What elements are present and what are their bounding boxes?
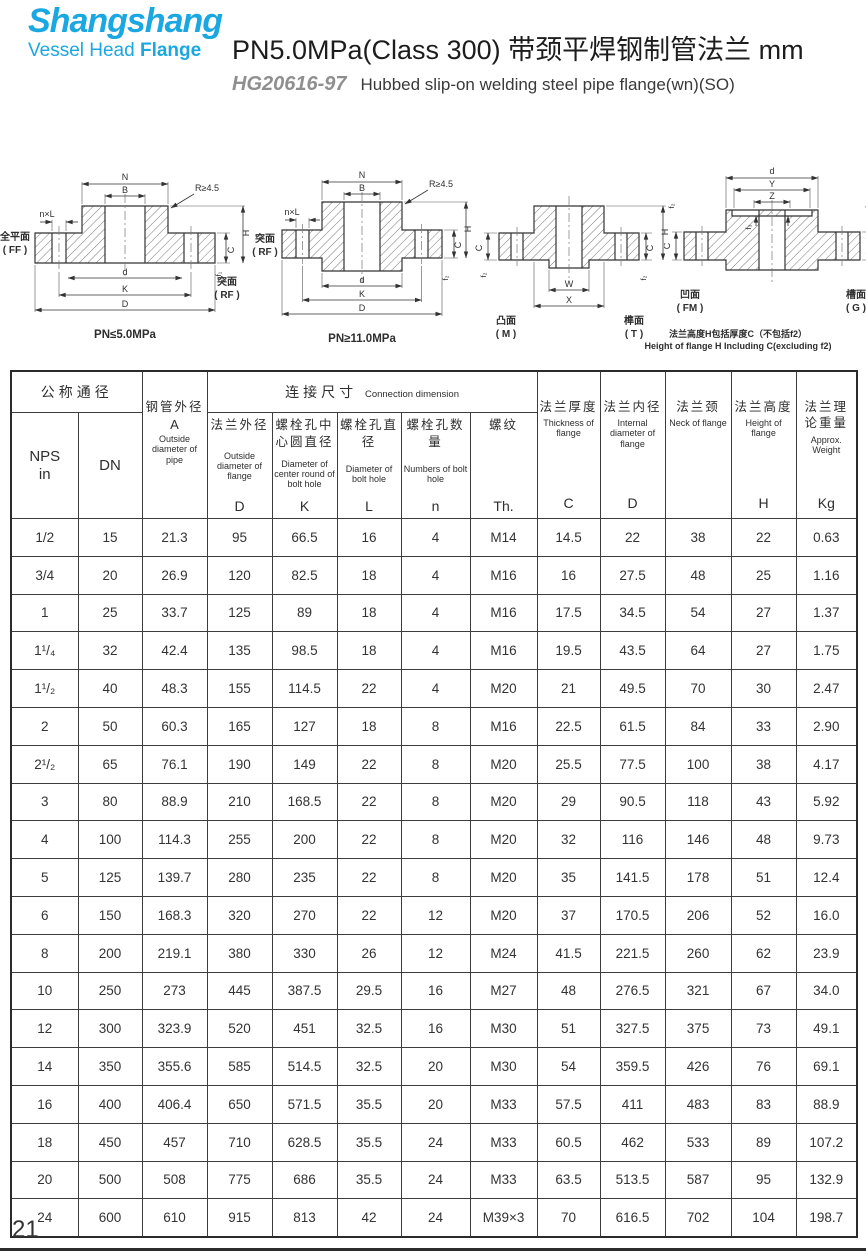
brand-name: Shangshang — [28, 4, 228, 38]
table-cell: 8 — [401, 745, 470, 783]
table-cell: 38 — [665, 519, 731, 557]
table-cell: 451 — [272, 1010, 337, 1048]
table-cell: 16 — [11, 1085, 78, 1123]
header-cn: 法兰外径 — [210, 417, 268, 434]
table-cell: 95 — [731, 1161, 796, 1199]
table-cell: 146 — [665, 821, 731, 859]
table-cell: 170.5 — [600, 896, 665, 934]
table-cell: 21 — [537, 670, 600, 708]
table-cell: 1.75 — [796, 632, 857, 670]
drawing2-caption: PN≥11.0MPa — [328, 333, 396, 345]
table-cell: 426 — [665, 1048, 731, 1086]
table-cell: 63.5 — [537, 1161, 600, 1199]
table-cell: 2.47 — [796, 670, 857, 708]
dim-label-C: C — [226, 246, 236, 253]
dim-label-C-right: C — [645, 244, 655, 251]
table-cell: 19.5 — [537, 632, 600, 670]
height-note-cn: 法兰高度H包括厚度C（不包括f2） — [610, 328, 866, 340]
table-cell: 813 — [272, 1199, 337, 1237]
table-cell: 69.1 — [796, 1048, 857, 1086]
table-cell: 84 — [665, 707, 731, 745]
brand-logo: Shangshang Vessel Head Flange — [28, 4, 228, 62]
table-cell: 32 — [537, 821, 600, 859]
table-cell: 64 — [665, 632, 731, 670]
column-header-flange-od: 法兰外径 Outside diameter of flange D — [207, 413, 272, 519]
table-cell: 450 — [78, 1123, 142, 1161]
dim-label-f2-left: f₂ — [667, 203, 676, 208]
table-cell: 22 — [337, 896, 401, 934]
header-letter: C — [564, 495, 574, 511]
table-cell: 32.5 — [337, 1048, 401, 1086]
table-cell: 520 — [207, 1010, 272, 1048]
table-row: 2050050877568635.524M3363.5513.558795132… — [11, 1161, 857, 1199]
table-cell: 150 — [78, 896, 142, 934]
table-cell: 571.5 — [272, 1085, 337, 1123]
table-cell: 49.5 — [600, 670, 665, 708]
table-cell: 51 — [537, 1010, 600, 1048]
table-cell: 20 — [78, 556, 142, 594]
table-cell: 16 — [401, 972, 470, 1010]
table-cell: 127 — [272, 707, 337, 745]
table-cell: 61.5 — [600, 707, 665, 745]
table-cell: 98.5 — [272, 632, 337, 670]
table-cell: 9.73 — [796, 821, 857, 859]
face-label-ff-cn: 全平面 — [0, 230, 30, 243]
table-cell: 3 — [11, 783, 78, 821]
brand-tagline: Vessel Head Flange — [28, 40, 228, 62]
table-cell: 12 — [401, 934, 470, 972]
table-cell: 320 — [207, 896, 272, 934]
dim-label-d: d — [359, 275, 364, 285]
table-cell: 18 — [337, 707, 401, 745]
table-cell: 107.2 — [796, 1123, 857, 1161]
group-connection-en: Connection dimension — [365, 389, 459, 400]
table-cell: 34.0 — [796, 972, 857, 1010]
header-letter: D — [234, 498, 244, 514]
table-cell: 273 — [142, 972, 207, 1010]
table-cell: 16 — [537, 556, 600, 594]
table-cell: 89 — [731, 1123, 796, 1161]
table-cell: 60.3 — [142, 707, 207, 745]
header-letter: H — [759, 495, 769, 511]
table-cell: 330 — [272, 934, 337, 972]
dim-label-C-left: C — [664, 242, 672, 249]
table-cell: 32 — [78, 632, 142, 670]
face-label-fm-cn: 凹面 — [680, 289, 700, 301]
table-row: 16400406.4650571.535.520M3357.5411483838… — [11, 1085, 857, 1123]
table-row: 6150168.33202702212M2037170.52065216.0 — [11, 896, 857, 934]
table-cell: 40 — [78, 670, 142, 708]
table-cell: M27 — [470, 972, 537, 1010]
table-cell: 350 — [78, 1048, 142, 1086]
table-cell: 513.5 — [600, 1161, 665, 1199]
table-cell: M16 — [470, 632, 537, 670]
header-letter: D — [628, 495, 638, 511]
flange-spec-table: 公称通径 钢管外径 A Outside diameter of pipe 连接尺… — [10, 370, 858, 1238]
table-cell: 5.92 — [796, 783, 857, 821]
table-row: 3/42026.912082.5184M161627.548251.16 — [11, 556, 857, 594]
header-cn: 法兰内径 — [604, 399, 662, 416]
header-en: Diameter of center round of bolt hole — [274, 459, 336, 489]
title-block: PN5.0MPa(Class 300) 带颈平焊钢制管法兰 mm HG20616… — [232, 28, 866, 96]
header-cn: 螺栓孔直径 — [339, 417, 400, 451]
table-row: 12300323.952045132.516M3051327.53757349.… — [11, 1010, 857, 1048]
face-label-g-en: ( G ) — [846, 303, 866, 314]
table-row: 25060.3165127188M1622.561.584332.90 — [11, 707, 857, 745]
header-letter: K — [300, 498, 309, 514]
table-cell: 260 — [665, 934, 731, 972]
table-row: 8200219.13803302612M2441.5221.52606223.9 — [11, 934, 857, 972]
header-cn: 螺栓孔数量 — [403, 417, 469, 451]
table-cell: 70 — [537, 1199, 600, 1237]
table-cell: 280 — [207, 859, 272, 897]
table-cell: M30 — [470, 1010, 537, 1048]
table-cell: 4.17 — [796, 745, 857, 783]
table-cell: 27 — [731, 632, 796, 670]
table-cell: 22 — [337, 670, 401, 708]
table-cell: 22 — [337, 783, 401, 821]
table-cell: 235 — [272, 859, 337, 897]
subtitle-english: Hubbed slip-on welding steel pipe flange… — [361, 75, 735, 94]
table-cell: 125 — [78, 859, 142, 897]
column-header-thread: 螺纹 Th. — [470, 413, 537, 519]
table-cell: 2¹/₂ — [11, 745, 78, 783]
table-cell: 221.5 — [600, 934, 665, 972]
header-letter: n — [432, 498, 440, 514]
table-cell: 359.5 — [600, 1048, 665, 1086]
table-cell: 198.7 — [796, 1199, 857, 1237]
table-cell: 17.5 — [537, 594, 600, 632]
table-cell: 43 — [731, 783, 796, 821]
table-cell: 118 — [665, 783, 731, 821]
dim-label-f2-right: f₂ — [639, 275, 648, 280]
table-cell: 686 — [272, 1161, 337, 1199]
table-cell: 20 — [11, 1161, 78, 1199]
table-cell: 82.5 — [272, 556, 337, 594]
table-cell: 54 — [665, 594, 731, 632]
dim-label-nxL: n×L — [284, 207, 299, 217]
table-cell: 37 — [537, 896, 600, 934]
table-cell: 80 — [78, 783, 142, 821]
page-subtitle: HG20616-97Hubbed slip-on welding steel p… — [232, 73, 866, 96]
table-cell: 514.5 — [272, 1048, 337, 1086]
table-cell: 300 — [78, 1010, 142, 1048]
table-cell: 76.1 — [142, 745, 207, 783]
table-cell: M20 — [470, 821, 537, 859]
table-cell: 1.37 — [796, 594, 857, 632]
table-row: 18450457710628.535.524M3360.546253389107… — [11, 1123, 857, 1161]
header-letter: A — [170, 417, 179, 432]
table-cell: 25 — [78, 594, 142, 632]
column-header-thickness: 法兰厚度 Thickness of flange C — [537, 371, 600, 519]
header-en: Height of flange — [733, 418, 795, 438]
dim-label-H: H — [463, 226, 472, 233]
catalog-page: Shangshang Vessel Head Flange PN5.0MPa(C… — [0, 0, 866, 1251]
table-cell: 10 — [11, 972, 78, 1010]
table-cell: 610 — [142, 1199, 207, 1237]
table-row: 2¹/₂6576.1190149228M2025.577.5100384.17 — [11, 745, 857, 783]
table-cell: 50 — [78, 707, 142, 745]
table-cell: 95 — [207, 519, 272, 557]
table-cell: M24 — [470, 934, 537, 972]
table-row: 38088.9210168.5228M202990.5118435.92 — [11, 783, 857, 821]
table-cell: 32.5 — [337, 1010, 401, 1048]
header-cn: 螺纹 — [489, 417, 518, 434]
table-cell: 200 — [78, 934, 142, 972]
table-row: 1/21521.39566.5164M1414.52238220.63 — [11, 519, 857, 557]
table-cell: 57.5 — [537, 1085, 600, 1123]
table-cell: 8 — [401, 859, 470, 897]
dim-label-B: B — [359, 183, 365, 193]
header-en: Outside diameter of pipe — [144, 434, 206, 464]
header-en: Internal diameter of flange — [602, 418, 664, 448]
dim-label-f2-left: f₂ — [479, 272, 488, 277]
face-label-rf-cn: 突面 — [217, 275, 237, 288]
table-cell: 88.9 — [796, 1085, 857, 1123]
table-cell: 18 — [337, 632, 401, 670]
table-cell: 139.7 — [142, 859, 207, 897]
table-row: 246006109158134224M39×370616.5702104198.… — [11, 1199, 857, 1237]
dim-label-X: X — [566, 295, 572, 305]
table-cell: 702 — [665, 1199, 731, 1237]
header-cn: 螺栓孔中心圆直径 — [274, 417, 336, 451]
table-cell: 165 — [207, 707, 272, 745]
table-cell: 155 — [207, 670, 272, 708]
drawing1-caption: PN≤5.0MPa — [94, 329, 157, 341]
table-cell: 16 — [337, 519, 401, 557]
table-cell: 60.5 — [537, 1123, 600, 1161]
table-cell: 29 — [537, 783, 600, 821]
table-cell: M39×3 — [470, 1199, 537, 1237]
dim-label-D: D — [122, 299, 129, 309]
table-cell: 4 — [401, 670, 470, 708]
table-cell: M33 — [470, 1085, 537, 1123]
table-cell: 70 — [665, 670, 731, 708]
table-cell: 34.5 — [600, 594, 665, 632]
table-cell: 33.7 — [142, 594, 207, 632]
table-cell: 120 — [207, 556, 272, 594]
header-cn: 钢管外径 — [145, 399, 203, 416]
table-cell: 190 — [207, 745, 272, 783]
header-en: Numbers of bolt hole — [403, 464, 469, 484]
header-en: Thickness of flange — [539, 418, 599, 438]
table-row: 12533.712589184M1617.534.554271.37 — [11, 594, 857, 632]
table-cell: 710 — [207, 1123, 272, 1161]
flange-drawing-rf-hub: N B n×L R≥4.5 d K D C H f₂ 突面 ( RF ) PN≥… — [252, 138, 472, 366]
table-cell: 462 — [600, 1123, 665, 1161]
table-cell: 16.0 — [796, 896, 857, 934]
header-letter: L — [365, 498, 373, 514]
face-label-m-cn: 凸面 — [496, 315, 516, 327]
face-label-g-cn: 槽面 — [846, 288, 866, 301]
table-cell: 24 — [401, 1123, 470, 1161]
table-cell: 35.5 — [337, 1123, 401, 1161]
table-cell: 1.16 — [796, 556, 857, 594]
table-cell: M20 — [470, 896, 537, 934]
table-cell: M20 — [470, 783, 537, 821]
table-cell: 65 — [78, 745, 142, 783]
table-cell: 114.5 — [272, 670, 337, 708]
table-cell: 2.90 — [796, 707, 857, 745]
table-cell: 48 — [537, 972, 600, 1010]
table-cell: 168.3 — [142, 896, 207, 934]
dim-label-C-left: C — [474, 244, 484, 251]
table-cell: 76 — [731, 1048, 796, 1086]
table-cell: 210 — [207, 783, 272, 821]
table-cell: 67 — [731, 972, 796, 1010]
table-cell: 125 — [207, 594, 272, 632]
column-header-weight: 法兰理论重量 Approx. Weight Kg — [796, 371, 857, 519]
header-en: Diameter of bolt hole — [339, 464, 400, 484]
table-cell: M33 — [470, 1161, 537, 1199]
dim-label-D: D — [359, 303, 366, 313]
dim-label-H: H — [241, 230, 250, 237]
table-cell: 22 — [337, 859, 401, 897]
dim-label-R: R≥4.5 — [429, 179, 453, 189]
header-cn: 法兰理论重量 — [798, 399, 856, 433]
table-cell: 38 — [731, 745, 796, 783]
face-label-ff-en: ( FF ) — [3, 245, 27, 256]
table-cell: M33 — [470, 1123, 537, 1161]
table-cell: 100 — [78, 821, 142, 859]
table-cell: 20 — [401, 1085, 470, 1123]
table-cell: 323.9 — [142, 1010, 207, 1048]
table-cell: 25 — [731, 556, 796, 594]
table-cell: 73 — [731, 1010, 796, 1048]
table-cell: 1 — [11, 594, 78, 632]
table-cell: 15 — [78, 519, 142, 557]
dim-label-d: d — [769, 166, 774, 176]
table-cell: 5 — [11, 859, 78, 897]
dim-label-d: d — [122, 267, 127, 277]
table-cell: 26.9 — [142, 556, 207, 594]
header-en: Neck of flange — [669, 418, 727, 428]
table-cell: 24 — [401, 1161, 470, 1199]
table-cell: 48.3 — [142, 670, 207, 708]
column-header-neck: 法兰颈 Neck of flange — [665, 371, 731, 519]
column-header-inner-dia: 法兰内径 Internal diameter of flange D — [600, 371, 665, 519]
table-cell: 30 — [731, 670, 796, 708]
table-cell: 33 — [731, 707, 796, 745]
table-cell: M20 — [470, 670, 537, 708]
face-label-rf-cn: 突面 — [255, 232, 275, 245]
table-cell: 219.1 — [142, 934, 207, 972]
table-cell: 255 — [207, 821, 272, 859]
table-cell: 114.3 — [142, 821, 207, 859]
dim-label-N: N — [359, 170, 366, 180]
dim-label-K: K — [122, 284, 128, 294]
dim-label-f2: f₂ — [441, 275, 450, 280]
header-en: Outside diameter of flange — [209, 451, 271, 481]
table-cell: M20 — [470, 745, 537, 783]
table-cell: 628.5 — [272, 1123, 337, 1161]
table-cell: 616.5 — [600, 1199, 665, 1237]
table-cell: 89 — [272, 594, 337, 632]
table-cell: 915 — [207, 1199, 272, 1237]
column-header-bolt-circle: 螺栓孔中心圆直径 Diameter of center round of bol… — [272, 413, 337, 519]
table-cell: 29.5 — [337, 972, 401, 1010]
table-cell: 43.5 — [600, 632, 665, 670]
group-header-nominal: 公称通径 — [11, 371, 142, 413]
table-cell: 26 — [337, 934, 401, 972]
table-cell: 41.5 — [537, 934, 600, 972]
table-cell: 168.5 — [272, 783, 337, 821]
table-cell: 141.5 — [600, 859, 665, 897]
dim-label-Z: Z — [769, 191, 775, 201]
table-cell: 20 — [401, 1048, 470, 1086]
dim-label-B: B — [122, 185, 128, 195]
table-cell: 457 — [142, 1123, 207, 1161]
table-cell: 650 — [207, 1085, 272, 1123]
table-cell: 276.5 — [600, 972, 665, 1010]
height-note-en: Height of flange H Including C(excluding… — [610, 340, 866, 352]
table-cell: 206 — [665, 896, 731, 934]
table-cell: 24 — [401, 1199, 470, 1237]
table-cell: 22 — [731, 519, 796, 557]
standard-code: HG20616-97 — [232, 73, 347, 95]
column-header-pipe-od: 钢管外径 A Outside diameter of pipe — [142, 371, 207, 519]
dim-label-f1: f₁ — [214, 271, 223, 276]
table-row: 1¹/₄3242.413598.5184M1619.543.564271.75 — [11, 632, 857, 670]
face-label-rf-en: ( RF ) — [214, 290, 240, 301]
table-cell: 270 — [272, 896, 337, 934]
table-cell: 51 — [731, 859, 796, 897]
page-title: PN5.0MPa(Class 300) 带颈平焊钢制管法兰 mm — [232, 28, 866, 67]
group-nominal-label: 公称通径 — [41, 384, 113, 400]
table-cell: 18 — [337, 556, 401, 594]
table-cell: 321 — [665, 972, 731, 1010]
table-cell: 387.5 — [272, 972, 337, 1010]
table-cell: 16 — [401, 1010, 470, 1048]
header-letter: Th. — [493, 498, 513, 514]
dim-label-nxL: n×L — [39, 209, 54, 219]
table-cell: 54 — [537, 1048, 600, 1086]
table-cell: 375 — [665, 1010, 731, 1048]
face-label-rf-en: ( RF ) — [252, 247, 278, 258]
table-cell: M16 — [470, 556, 537, 594]
dim-label-K: K — [359, 289, 365, 299]
table-cell: 35 — [537, 859, 600, 897]
face-label-m-en: ( M ) — [496, 329, 517, 340]
table-cell: 77.5 — [600, 745, 665, 783]
flange-drawing-ff-rf: N B n×L R≥4.5 d K D C H f₁ 全平面 ( FF ) 突面… — [0, 138, 250, 366]
header-cn: 法兰高度 — [735, 399, 793, 416]
table-cell: 587 — [665, 1161, 731, 1199]
table-cell: 27 — [731, 594, 796, 632]
table-cell: 27.5 — [600, 556, 665, 594]
header-letter: NPS in — [12, 416, 78, 516]
table-cell: 483 — [665, 1085, 731, 1123]
dim-label-N: N — [122, 172, 129, 182]
table-cell: M16 — [470, 707, 537, 745]
table-cell: 35.5 — [337, 1161, 401, 1199]
table-cell: 0.63 — [796, 519, 857, 557]
group-connection-cn: 连接尺寸 — [285, 384, 357, 400]
table-cell: 66.5 — [272, 519, 337, 557]
table-cell: 35.5 — [337, 1085, 401, 1123]
table-cell: 445 — [207, 972, 272, 1010]
table-cell: 8 — [401, 783, 470, 821]
table-cell: 500 — [78, 1161, 142, 1199]
column-header-height: 法兰高度 Height of flange H — [731, 371, 796, 519]
table-cell: 23.9 — [796, 934, 857, 972]
table-cell: 12 — [11, 1010, 78, 1048]
table-cell: M20 — [470, 859, 537, 897]
table-row: 10250273445387.529.516M2748276.53216734.… — [11, 972, 857, 1010]
table-cell: 22 — [600, 519, 665, 557]
table-cell: 12 — [401, 896, 470, 934]
table-cell: 355.6 — [142, 1048, 207, 1086]
